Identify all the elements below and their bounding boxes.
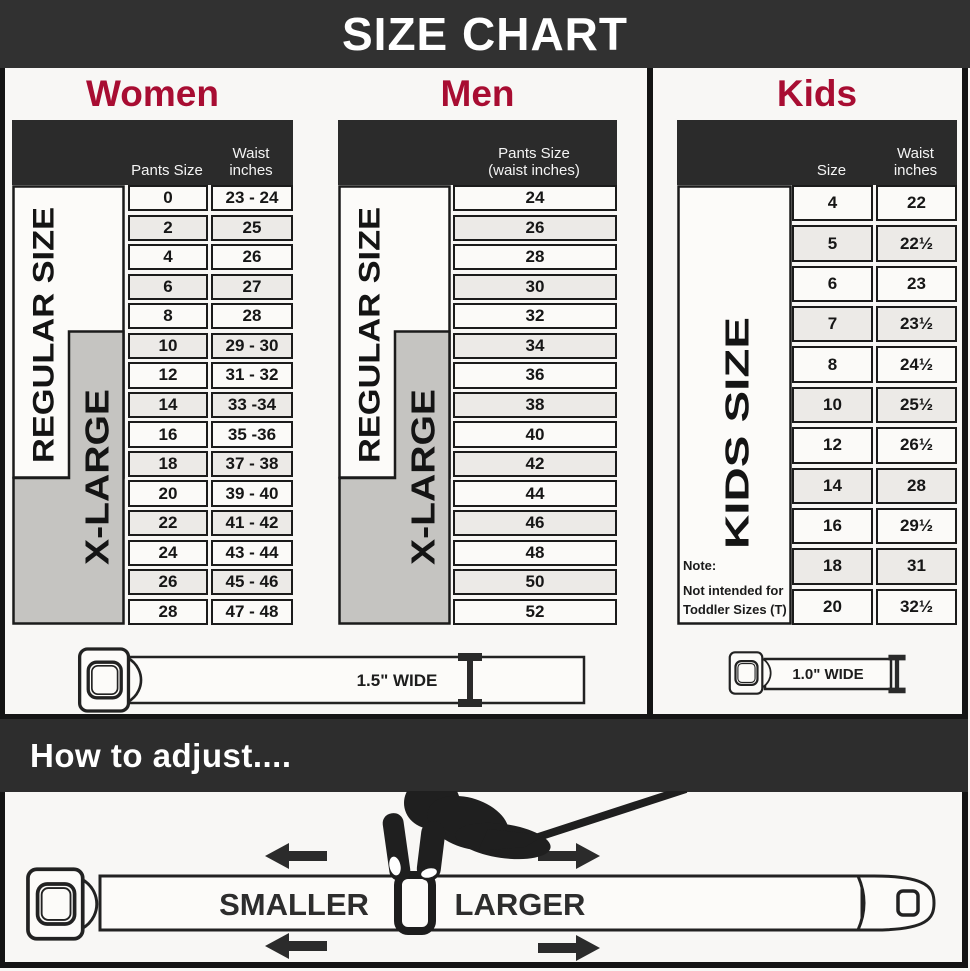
kids-belt-width-label: 1.0" WIDE xyxy=(792,666,863,683)
pulled-strap-end xyxy=(520,791,686,843)
kids-size-cell: 18 xyxy=(792,548,873,584)
women-pants-column: 0246810121416182022242628 xyxy=(128,185,208,625)
men-size-column: 242628303234363840424446485052 xyxy=(453,185,617,625)
men-size-group-labels: REGULAR SIZE X-LARGE xyxy=(338,185,451,625)
women-pants-cell: 26 xyxy=(128,569,208,595)
women-waist-cell: 47 - 48 xyxy=(211,599,293,625)
how-to-adjust-banner: How to adjust.... xyxy=(0,714,968,792)
how-to-adjust-title: How to adjust.... xyxy=(30,737,292,775)
women-pants-cell: 22 xyxy=(128,510,208,536)
belt-adjuster-slider xyxy=(398,875,432,931)
men-size-cell: 46 xyxy=(453,510,617,536)
women-pants-size-header: Pants Size xyxy=(126,162,208,179)
kids-waist-cell: 26½ xyxy=(876,427,957,463)
belt-tip-hole xyxy=(898,891,918,915)
kids-size-cell: 12 xyxy=(792,427,873,463)
kids-size-cell: 4 xyxy=(792,185,873,221)
kids-waist-cell: 25½ xyxy=(876,387,957,423)
men-regular-size-label: REGULAR SIZE xyxy=(354,207,387,463)
women-pants-cell: 14 xyxy=(128,392,208,418)
kids-size-cell: 14 xyxy=(792,468,873,504)
kids-waist-cell: 28 xyxy=(876,468,957,504)
women-heading: Women xyxy=(12,75,293,112)
adult-belt-width-label: 1.5" WIDE xyxy=(357,671,438,690)
women-pants-cell: 12 xyxy=(128,362,208,388)
women-table-header: Pants Size Waist inches xyxy=(12,120,293,185)
kids-waist-header: Waist inches xyxy=(874,145,957,179)
title-banner: SIZE CHART xyxy=(0,0,970,68)
kids-note: Note: Not intended for Toddler Sizes (T) xyxy=(683,557,789,620)
kids-waist-cell: 32½ xyxy=(876,589,957,625)
men-heading: Men xyxy=(338,75,617,112)
women-pants-cell: 28 xyxy=(128,599,208,625)
larger-arrow-bottom-icon xyxy=(538,935,600,961)
smaller-label: SMALLER xyxy=(219,887,369,922)
adult-belt-illustration: 1.5" WIDE xyxy=(70,645,590,717)
kids-waist-cell: 22 xyxy=(876,185,957,221)
men-size-cell: 50 xyxy=(453,569,617,595)
men-size-cell: 30 xyxy=(453,274,617,300)
kids-size-cell: 6 xyxy=(792,266,873,302)
women-pants-cell: 16 xyxy=(128,421,208,447)
women-waist-cell: 41 - 42 xyxy=(211,510,293,536)
women-waist-cell: 23 - 24 xyxy=(211,185,293,211)
larger-label: LARGER xyxy=(455,887,586,922)
men-size-cell: 48 xyxy=(453,540,617,566)
women-pants-cell: 20 xyxy=(128,480,208,506)
women-waist-cell: 33 -34 xyxy=(211,392,293,418)
women-pants-cell: 8 xyxy=(128,303,208,329)
kids-waist-cell: 23½ xyxy=(876,306,957,342)
kids-waist-cell: 31 xyxy=(876,548,957,584)
men-table-header: Pants Size (waist inches) xyxy=(338,120,617,185)
kids-size-cell: 16 xyxy=(792,508,873,544)
kids-waist-cell: 22½ xyxy=(876,225,957,261)
women-waist-cell: 31 - 32 xyxy=(211,362,293,388)
men-size-cell: 24 xyxy=(453,185,617,211)
page-title: SIZE CHART xyxy=(342,7,628,61)
women-waist-cell: 27 xyxy=(211,274,293,300)
kids-size-cell: 20 xyxy=(792,589,873,625)
smaller-arrow-bottom-icon xyxy=(265,933,327,959)
kids-heading: Kids xyxy=(677,75,957,112)
kids-size-cell: 10 xyxy=(792,387,873,423)
women-pants-cell: 6 xyxy=(128,274,208,300)
smaller-arrow-top-icon xyxy=(265,843,327,869)
women-waist-cell: 43 - 44 xyxy=(211,540,293,566)
men-size-cell: 28 xyxy=(453,244,617,270)
men-size-cell: 32 xyxy=(453,303,617,329)
women-waist-cell: 29 - 30 xyxy=(211,333,293,359)
kids-waist-column: 2222½2323½24½25½26½2829½3132½ xyxy=(876,185,957,625)
women-waist-cell: 45 - 46 xyxy=(211,569,293,595)
women-waist-cell: 37 - 38 xyxy=(211,451,293,477)
belt-size-chart-infographic: SIZE CHART Women Men Kids Pants Size Wai… xyxy=(0,0,970,971)
women-xlarge-label: X-LARGE xyxy=(79,389,116,565)
kids-size-cell: 5 xyxy=(792,225,873,261)
women-waist-column: 23 - 242526272829 - 3031 - 3233 -3435 -3… xyxy=(211,185,293,625)
women-size-group-labels: REGULAR SIZE X-LARGE xyxy=(12,185,125,625)
bottom-border xyxy=(0,962,968,968)
women-waist-cell: 25 xyxy=(211,215,293,241)
women-waist-cell: 39 - 40 xyxy=(211,480,293,506)
adjust-illustration: SMALLER LARGER xyxy=(0,791,970,962)
kids-belt-illustration: 1.0" WIDE xyxy=(725,648,920,698)
kids-size-column: 45678101214161820 xyxy=(792,185,873,625)
women-pants-cell: 4 xyxy=(128,244,208,270)
women-pants-cell: 0 xyxy=(128,185,208,211)
women-pants-cell: 18 xyxy=(128,451,208,477)
seatbelt-buckle-icon xyxy=(28,869,97,939)
belt-tip xyxy=(858,876,934,930)
men-size-cell: 42 xyxy=(453,451,617,477)
kids-panel-divider xyxy=(647,68,653,714)
women-waist-cell: 26 xyxy=(211,244,293,270)
men-xlarge-label: X-LARGE xyxy=(405,389,442,565)
men-size-cell: 36 xyxy=(453,362,617,388)
men-pants-size-header: Pants Size (waist inches) xyxy=(451,145,617,179)
pinching-hand-icon xyxy=(381,791,553,882)
women-waist-cell: 35 -36 xyxy=(211,421,293,447)
kids-size-cell: 7 xyxy=(792,306,873,342)
kids-waist-cell: 29½ xyxy=(876,508,957,544)
kids-waist-cell: 24½ xyxy=(876,346,957,382)
kids-size-header: Size xyxy=(790,162,873,179)
women-pants-cell: 10 xyxy=(128,333,208,359)
men-size-cell: 40 xyxy=(453,421,617,447)
men-size-cell: 26 xyxy=(453,215,617,241)
men-size-cell: 34 xyxy=(453,333,617,359)
kids-waist-cell: 23 xyxy=(876,266,957,302)
kids-table-header: Size Waist inches xyxy=(677,120,957,185)
men-size-cell: 38 xyxy=(453,392,617,418)
women-regular-size-label: REGULAR SIZE xyxy=(28,207,61,463)
men-size-cell: 44 xyxy=(453,480,617,506)
kids-size-cell: 8 xyxy=(792,346,873,382)
women-waist-header: Waist inches xyxy=(209,145,293,179)
women-pants-cell: 2 xyxy=(128,215,208,241)
women-waist-cell: 28 xyxy=(211,303,293,329)
men-size-cell: 52 xyxy=(453,599,617,625)
kids-size-label: KIDS SIZE xyxy=(719,317,756,549)
women-pants-cell: 24 xyxy=(128,540,208,566)
